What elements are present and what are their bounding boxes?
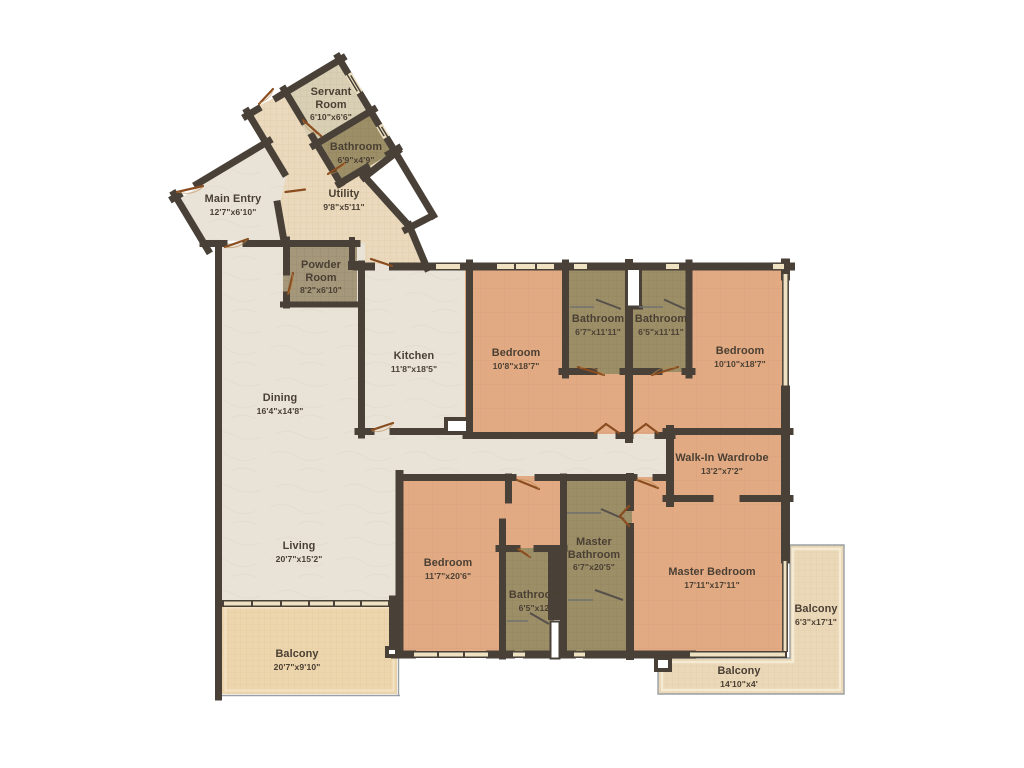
svg-text:16'4"x14'8": 16'4"x14'8": [257, 406, 304, 416]
svg-text:6'7"x20'5": 6'7"x20'5": [573, 562, 615, 572]
svg-text:Balcony: Balcony: [275, 648, 318, 660]
svg-text:Bedroom: Bedroom: [424, 557, 473, 569]
svg-text:6'5"x12': 6'5"x12': [519, 603, 552, 613]
svg-text:Bathroom: Bathroom: [635, 313, 687, 325]
svg-text:Kitchen: Kitchen: [394, 350, 435, 362]
svg-text:Powder: Powder: [301, 259, 342, 271]
svg-text:Living: Living: [283, 540, 316, 552]
svg-text:6'10"x6'6": 6'10"x6'6": [310, 112, 352, 122]
svg-text:6'9"x4'9": 6'9"x4'9": [337, 155, 374, 165]
svg-text:14'10"x4': 14'10"x4': [720, 679, 758, 689]
svg-text:Bathroom: Bathroom: [568, 549, 620, 561]
svg-text:12'7"x6'10": 12'7"x6'10": [210, 207, 257, 217]
svg-text:Servant: Servant: [311, 86, 352, 98]
svg-text:8'2"x6'10": 8'2"x6'10": [300, 285, 342, 295]
svg-text:6'5"x11'11": 6'5"x11'11": [638, 327, 684, 337]
svg-text:Bedroom: Bedroom: [492, 347, 541, 359]
svg-text:17'11"x17'11": 17'11"x17'11": [684, 580, 740, 590]
svg-text:Master: Master: [576, 536, 612, 548]
svg-text:Master Bedroom: Master Bedroom: [668, 566, 756, 578]
svg-text:Bathroom: Bathroom: [572, 313, 624, 325]
svg-text:Main Entry: Main Entry: [205, 193, 262, 205]
svg-text:Room: Room: [315, 99, 346, 111]
svg-text:20'7"x15'2": 20'7"x15'2": [276, 554, 323, 564]
svg-text:Dining: Dining: [263, 392, 297, 404]
svg-text:Bathroom: Bathroom: [330, 141, 382, 153]
svg-text:Walk-In Wardrobe: Walk-In Wardrobe: [675, 452, 768, 464]
svg-text:Balcony: Balcony: [794, 603, 837, 615]
svg-text:Bathroom: Bathroom: [509, 589, 561, 601]
svg-text:Balcony: Balcony: [717, 665, 760, 677]
svg-text:Utility: Utility: [329, 188, 360, 200]
svg-text:10'8"x18'7": 10'8"x18'7": [493, 361, 540, 371]
svg-text:10'10"x18'7": 10'10"x18'7": [714, 359, 766, 369]
svg-text:Bedroom: Bedroom: [716, 345, 765, 357]
svg-text:6'7"x11'11": 6'7"x11'11": [575, 327, 621, 337]
svg-text:11'8"x18'5": 11'8"x18'5": [391, 364, 437, 374]
svg-text:20'7"x9'10": 20'7"x9'10": [274, 662, 321, 672]
svg-text:11'7"x20'6": 11'7"x20'6": [425, 571, 471, 581]
svg-text:6'3"x17'1": 6'3"x17'1": [795, 617, 837, 627]
svg-text:13'2"x7'2": 13'2"x7'2": [701, 466, 743, 476]
svg-text:Room: Room: [305, 272, 336, 284]
svg-text:9'8"x5'11": 9'8"x5'11": [323, 202, 364, 212]
